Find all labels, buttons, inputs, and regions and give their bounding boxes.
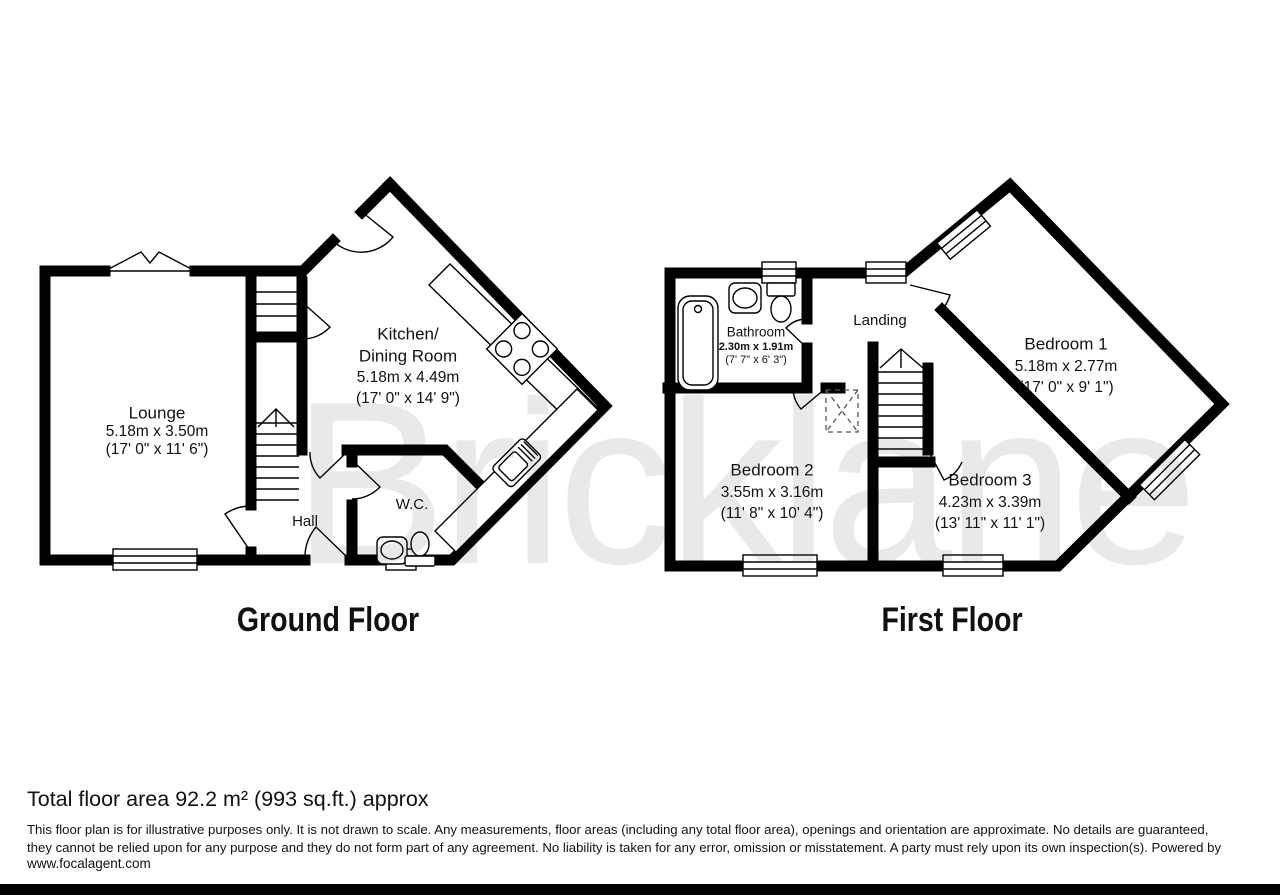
website-link: www.focalagent.com	[27, 856, 151, 871]
bedroom2-metric: 3.55m x 3.16m	[721, 484, 824, 501]
kitchen-metric: 5.18m x 4.49m	[357, 369, 460, 386]
stairs-up-arrow	[258, 409, 294, 427]
bedroom1-label: Bedroom 1	[1024, 334, 1107, 353]
bathroom-imperial: (7' 7" x 6' 3")	[725, 354, 787, 366]
bathroom-window	[762, 262, 796, 283]
lounge-label: Lounge	[129, 403, 186, 422]
disclaimer-line-1: This floor plan is for illustrative purp…	[27, 821, 1221, 839]
lounge-door	[225, 506, 251, 552]
lounge-metric: 5.18m x 3.50m	[106, 423, 209, 440]
wc-sink-icon	[377, 537, 407, 564]
first-floor-title: First Floor	[881, 601, 1022, 639]
wc-label: W.C.	[396, 496, 429, 513]
bedroom1-door	[910, 285, 950, 310]
bedroom1-metric: 5.18m x 2.77m	[1015, 358, 1118, 375]
floorplan-page: Lounge 5.18m x 3.50m (17' 0" x 11' 6") K…	[0, 0, 1280, 895]
bedroom2-label: Bedroom 2	[730, 460, 813, 479]
kitchen-label-1: Kitchen/	[377, 324, 439, 343]
landing-label: Landing	[853, 312, 906, 329]
bedroom3-imperial: (13' 11" x 11' 1")	[935, 515, 1045, 532]
bathroom-toilet-icon	[767, 283, 795, 322]
total-floor-area: Total floor area 92.2 m² (993 sq.ft.) ap…	[27, 787, 429, 812]
disclaimer: This floor plan is for illustrative purp…	[27, 821, 1221, 857]
first-floor-plan: Bathroom 2.30m x 1.91m (7' 7" x 6' 3") L…	[668, 185, 1222, 639]
floorplan-drawing: Lounge 5.18m x 3.50m (17' 0" x 11' 6") K…	[0, 0, 1280, 895]
bedroom3-window	[943, 555, 1003, 576]
first-stairs	[876, 349, 927, 449]
lounge-imperial: (17' 0" x 11' 6")	[106, 441, 209, 458]
bathroom-metric: 2.30m x 1.91m	[719, 341, 794, 353]
bedroom1-imperial: (17' 0" x 9' 1")	[1018, 379, 1113, 396]
ground-floor-plan: Lounge 5.18m x 3.50m (17' 0" x 11' 6") K…	[45, 184, 605, 639]
kitchen-label-2: Dining Room	[359, 346, 457, 365]
hall-kitchen-door	[310, 452, 347, 478]
disclaimer-line-2: they cannot be relied upon for any purpo…	[27, 839, 1221, 857]
lounge-window	[113, 549, 197, 570]
landing-window	[866, 262, 906, 283]
bedroom3-label: Bedroom 3	[948, 470, 1031, 489]
bedroom2-imperial: (11' 8" x 10' 4")	[721, 505, 824, 522]
ground-stairs	[254, 292, 299, 500]
cupboard	[826, 390, 858, 432]
hall-label: Hall	[292, 513, 318, 530]
bathroom-sink-icon	[729, 283, 761, 313]
ground-floor-title: Ground Floor	[237, 601, 419, 639]
bath-icon	[678, 296, 718, 390]
bedroom2-window	[743, 555, 817, 576]
stairs-up-arrow	[880, 349, 923, 368]
bottom-bar	[0, 884, 1280, 895]
kitchen-imperial: (17' 0" x 14' 9")	[356, 390, 460, 407]
front-door	[305, 527, 350, 560]
bedroom3-metric: 4.23m x 3.39m	[939, 494, 1042, 511]
bay-window	[105, 252, 195, 271]
bathroom-label: Bathroom	[727, 325, 786, 340]
